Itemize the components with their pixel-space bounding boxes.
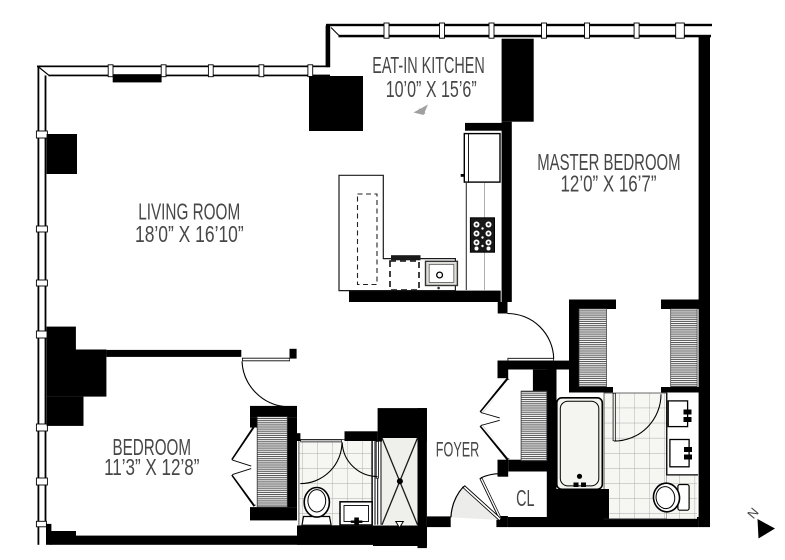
svg-text:EAT-IN KITCHEN: EAT-IN KITCHEN [372, 52, 485, 78]
svg-text:11’3” X 12’8”: 11’3” X 12’8” [104, 454, 199, 480]
svg-text:10’0” X 15’6”: 10’0” X 15’6” [386, 76, 477, 102]
svg-text:FOYER: FOYER [436, 439, 480, 462]
svg-text:CL: CL [516, 485, 535, 511]
svg-text:18’0” X 16’10”: 18’0” X 16’10” [135, 221, 244, 247]
svg-text:12’0” X 16’7”: 12’0” X 16’7” [561, 171, 657, 197]
